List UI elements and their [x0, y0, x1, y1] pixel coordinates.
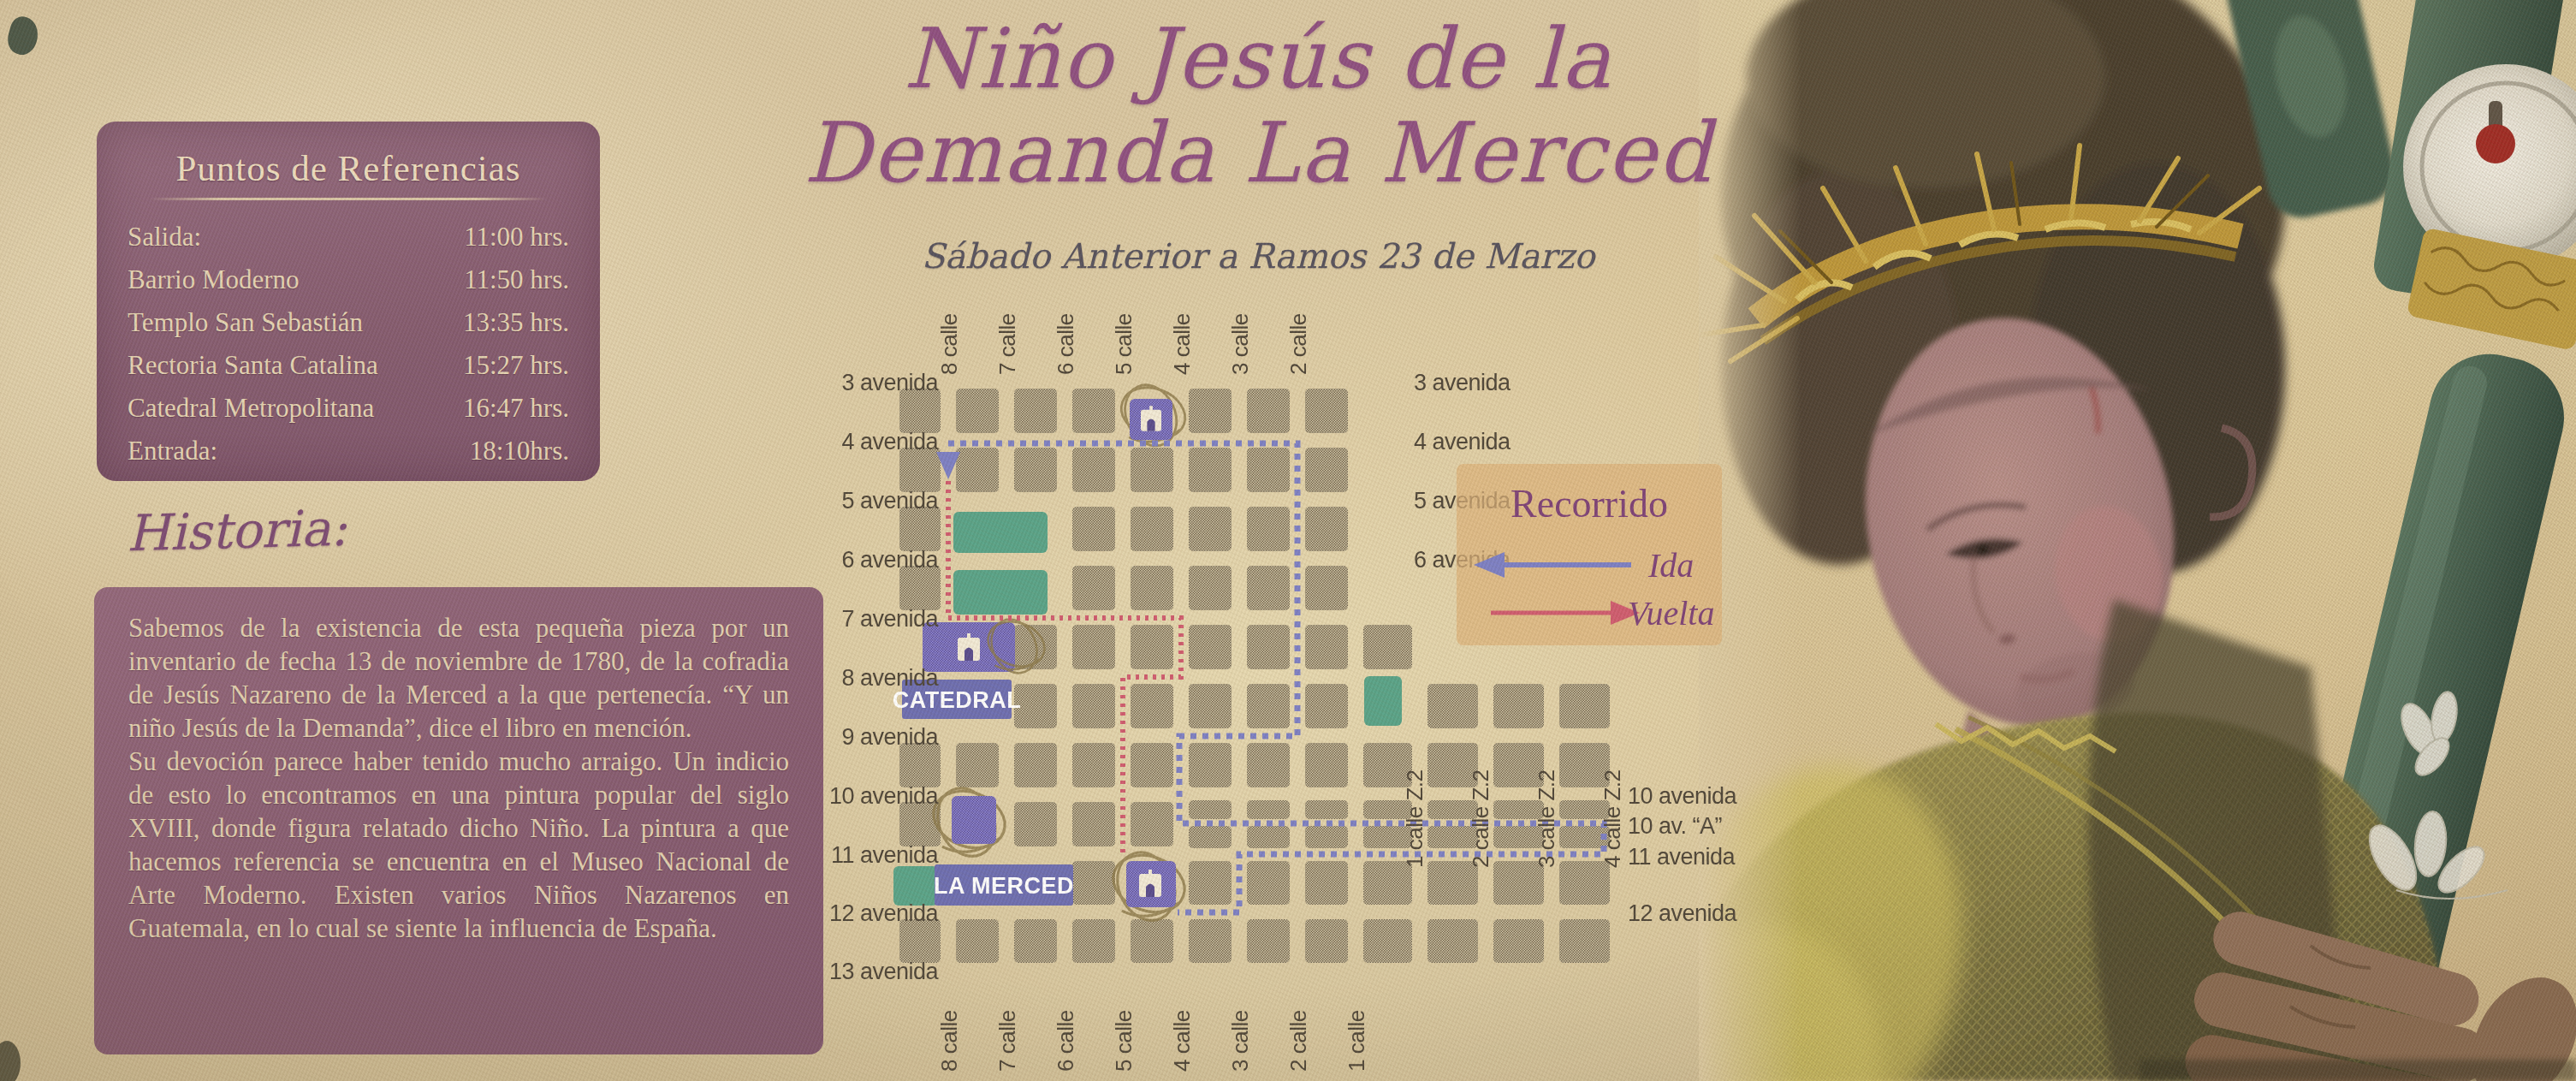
city-block	[1559, 684, 1610, 728]
city-block	[1493, 919, 1544, 963]
street-label: 10 avenida	[1628, 783, 1738, 809]
scan-artifact	[4, 14, 42, 57]
stop-label: Salida:	[128, 216, 201, 258]
legend-ida-label: Ida	[1647, 546, 1694, 585]
reference-row: Barrio Moderno 11:50 hrs.	[97, 258, 600, 301]
street-label: 2 calle	[1285, 1010, 1311, 1072]
city-block	[1072, 684, 1115, 728]
street-label: 10 av. “A”	[1628, 813, 1722, 839]
city-block	[1189, 800, 1232, 819]
city-block	[1247, 566, 1290, 610]
city-block	[1189, 566, 1232, 610]
city-block	[1305, 566, 1348, 610]
city-block	[1305, 861, 1348, 905]
street-label: 1 calle Z.2	[1402, 770, 1427, 868]
city-block	[1131, 684, 1173, 728]
history-paragraph: Sabemos de la existencia de esta pequeña…	[128, 611, 789, 745]
stop-label: Entrada:	[128, 430, 217, 472]
subtitle: Sábado Anterior a Ramos 23 de Marzo	[745, 236, 1772, 276]
scan-artifact	[0, 1041, 21, 1081]
reference-points-panel: Puntos de Referencias Salida: 11:00 hrs.…	[97, 122, 600, 481]
street-label: 7 avenida	[841, 606, 939, 632]
stop-label: Catedral Metropolitana	[128, 387, 374, 430]
city-block	[1305, 448, 1348, 492]
city-block	[1189, 919, 1232, 963]
route-map: CATEDRAL LA MERCED 3 avenida 4 avenida 5…	[822, 295, 1763, 1078]
street-label: 5 calle	[1111, 1010, 1137, 1072]
history-panel: Sabemos de la existencia de esta pequeña…	[94, 587, 823, 1054]
title-line-2: Demanda La Merced	[745, 106, 1772, 200]
city-block	[1427, 684, 1478, 728]
la-merced-label: LA MERCED	[934, 864, 1074, 906]
city-block	[1131, 919, 1173, 963]
street-label: 2 calle	[1285, 313, 1311, 375]
city-block	[956, 389, 999, 433]
city-block	[1072, 389, 1115, 433]
stop-label: Rectoria Santa Catalina	[128, 344, 378, 387]
reference-row: Entrada: 18:10hrs.	[97, 430, 600, 472]
city-block	[1305, 826, 1348, 848]
street-label: 7 calle	[994, 1010, 1020, 1072]
city-block	[1014, 919, 1057, 963]
catedral-label-text: CATEDRAL	[893, 687, 1021, 713]
city-block	[1189, 625, 1232, 669]
la-merced-label-text: LA MERCED	[934, 873, 1074, 899]
stop-time: 18:10hrs.	[470, 430, 569, 472]
street-label: 8 calle	[936, 1010, 962, 1072]
city-block	[1189, 743, 1232, 787]
street-label: 6 calle	[1053, 313, 1078, 375]
city-block	[1131, 625, 1173, 669]
city-block	[1493, 684, 1544, 728]
reference-row: Catedral Metropolitana 16:47 hrs.	[97, 387, 600, 430]
city-block	[1305, 389, 1348, 433]
stop-time: 16:47 hrs.	[463, 387, 569, 430]
street-label: 4 avenida	[841, 429, 939, 454]
street-label: 3 calle	[1227, 1010, 1253, 1072]
city-block	[1189, 389, 1232, 433]
reference-points-title: Puntos de Referencias	[114, 147, 583, 189]
street-label: 10 avenida	[829, 783, 940, 809]
city-block	[1131, 507, 1173, 551]
city-block	[1072, 625, 1115, 669]
street-label: 6 avenida	[841, 547, 939, 573]
city-block	[1305, 800, 1348, 819]
street-label: 9 avenida	[841, 724, 939, 750]
city-block	[1131, 566, 1173, 610]
city-block	[956, 448, 999, 492]
city-block	[1247, 507, 1290, 551]
street-label: 5 calle	[1111, 313, 1137, 375]
city-block	[1189, 861, 1232, 905]
city-block	[1305, 625, 1348, 669]
city-block	[1189, 684, 1232, 728]
stop-label: Barrio Moderno	[128, 258, 300, 301]
city-block	[1427, 919, 1478, 963]
city-block	[1014, 802, 1057, 846]
city-block	[1305, 684, 1348, 728]
city-block	[1131, 448, 1173, 492]
street-label: 2 calle Z.2	[1468, 770, 1493, 868]
city-block	[1189, 448, 1232, 492]
legend-vuelta-label: Vuelta	[1628, 594, 1714, 633]
city-block	[1247, 800, 1290, 819]
street-label: 7 calle	[994, 313, 1020, 375]
reference-row: Salida: 11:00 hrs.	[97, 216, 600, 258]
stop-label: Templo San Sebastián	[128, 301, 363, 344]
city-block	[1247, 861, 1290, 905]
city-block	[1014, 743, 1057, 787]
city-block	[1072, 802, 1115, 846]
city-block	[1072, 743, 1115, 787]
street-label: 1 calle	[1344, 1010, 1369, 1072]
city-block	[1305, 919, 1348, 963]
street-label: 13 avenida	[829, 959, 940, 984]
street-label: 4 calle	[1169, 1010, 1195, 1072]
city-block	[1189, 826, 1232, 848]
street-label: 3 calle Z.2	[1534, 770, 1559, 868]
street-label: 3 avenida	[1414, 370, 1511, 395]
street-label: 4 avenida	[1414, 429, 1511, 454]
city-block	[1131, 802, 1173, 846]
reference-row: Rectoria Santa Catalina 15:27 hrs.	[97, 344, 600, 387]
city-block	[1559, 919, 1610, 963]
city-block	[1014, 389, 1057, 433]
street-label: 8 calle	[936, 313, 962, 375]
city-block	[1131, 743, 1173, 787]
city-block	[1247, 389, 1290, 433]
street-label: 11 avenida	[831, 842, 940, 868]
city-block	[1014, 448, 1057, 492]
street-label: 6 calle	[1053, 1010, 1078, 1072]
city-block	[1247, 684, 1290, 728]
city-block	[1247, 826, 1290, 848]
street-label: 11 avenida	[1628, 844, 1736, 870]
history-paragraph: Su devoción parece haber tenido mucho ar…	[128, 745, 789, 945]
street-label: 12 avenida	[829, 900, 940, 926]
legend-title: Recorrido	[1511, 482, 1668, 526]
street-label: 12 avenida	[1628, 900, 1738, 926]
city-block	[1072, 507, 1115, 551]
street-label: 3 avenida	[841, 370, 939, 395]
statue-photo	[1699, 0, 2576, 1081]
city-block	[1072, 566, 1115, 610]
city-block	[1247, 743, 1290, 787]
city-block	[956, 919, 999, 963]
reference-row: Templo San Sebastián 13:35 hrs.	[97, 301, 600, 344]
stop-time: 15:27 hrs.	[463, 344, 569, 387]
street-label: 4 calle Z.2	[1600, 770, 1625, 868]
street-label: 3 calle	[1227, 313, 1253, 375]
stop-time: 13:35 hrs.	[463, 301, 569, 344]
title-line-1: Niño Jesús de la	[745, 12, 1772, 106]
city-block	[1305, 507, 1348, 551]
city-block	[1247, 448, 1290, 492]
city-block	[1247, 625, 1290, 669]
page-title: Niño Jesús de la Demanda La Merced	[745, 12, 1772, 200]
city-block	[1305, 743, 1348, 787]
street-label: 5 avenida	[841, 488, 939, 514]
history-heading: Historia:	[126, 499, 347, 563]
divider	[150, 198, 547, 200]
city-block	[1072, 919, 1115, 963]
scanned-flyer: Puntos de Referencias Salida: 11:00 hrs.…	[0, 0, 2576, 1081]
city-block	[1072, 861, 1115, 905]
city-block	[1072, 448, 1115, 492]
city-block	[1247, 919, 1290, 963]
route-legend: Recorrido Ida Vuelta	[1457, 464, 1722, 645]
city-block	[1363, 625, 1412, 669]
stop-time: 11:00 hrs.	[464, 216, 569, 258]
city-block	[1189, 507, 1232, 551]
street-label: 8 avenida	[841, 665, 939, 691]
city-block	[956, 743, 999, 787]
street-label: 4 calle	[1169, 313, 1195, 375]
stop-time: 11:50 hrs.	[464, 258, 569, 301]
city-block	[1363, 919, 1412, 963]
